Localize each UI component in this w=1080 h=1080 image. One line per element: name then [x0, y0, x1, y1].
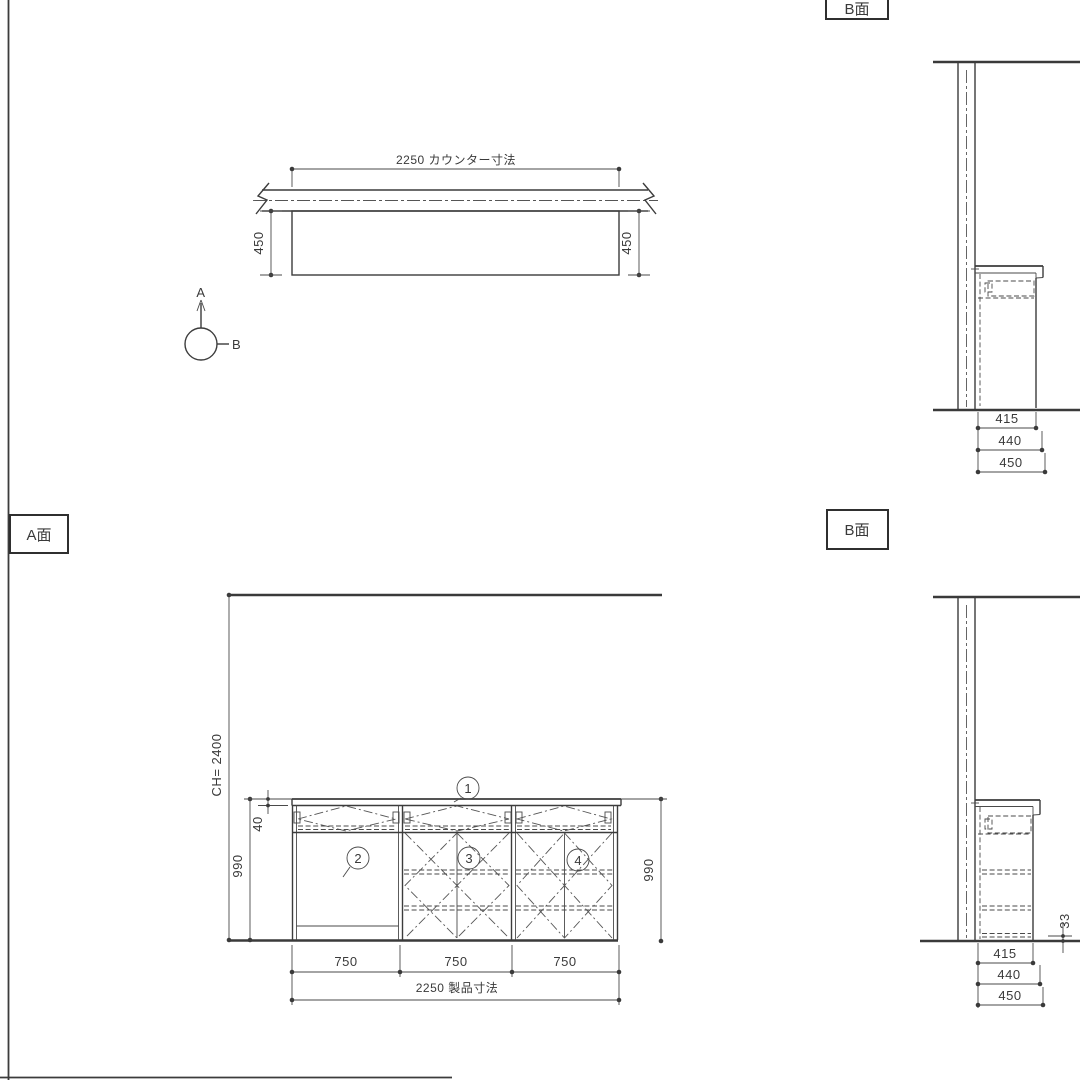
callout-1: 1: [464, 781, 471, 796]
b-bottom-title: B面: [844, 522, 869, 539]
plan-wall: [253, 183, 658, 214]
wall-break-left: [256, 183, 269, 214]
plan-counter-outline: [292, 211, 619, 275]
callout-3: 3: [465, 851, 472, 866]
a-drawer-row: [294, 806, 611, 831]
a-ch-label: CH= 2400: [209, 734, 224, 797]
a-door-bay-2: [404, 833, 510, 938]
a-counter-slab: [292, 799, 621, 806]
a-bottom-dims: 750 750 750 2250 製品寸法: [290, 945, 622, 1005]
plan-dim-450-left: 450: [251, 209, 282, 278]
b-bottom-dim-33: 33: [1048, 913, 1072, 953]
b-top-title: B面: [844, 1, 869, 18]
section-b-top: 415 440 450: [933, 62, 1080, 474]
b-bottom-dim-440: 440: [997, 967, 1020, 982]
a-40-label: 40: [250, 816, 265, 831]
b-bottom-dim-415: 415: [993, 946, 1016, 961]
plan-depth-left-label: 450: [251, 231, 266, 254]
a-dim-total: 2250 製品寸法: [416, 981, 499, 995]
a-dim-750-2: 750: [444, 954, 467, 969]
b-bottom-dims: 415 440 450: [976, 943, 1046, 1008]
b-top-dims: 415 440 450: [976, 411, 1048, 474]
a-dim-750-3: 750: [553, 954, 576, 969]
a-990-right-label: 990: [641, 858, 656, 881]
a-door-bay-3: [516, 833, 613, 938]
b-bottom-dim-450: 450: [998, 988, 1021, 1003]
b-top-counter: [971, 266, 1043, 408]
a-dim-990-right: 990: [621, 797, 667, 944]
b-top-drawer-hidden: [988, 281, 1034, 296]
callout-2: 2: [354, 851, 361, 866]
a-dim-750-1: 750: [334, 954, 357, 969]
b-top-dim-415: 415: [995, 411, 1018, 426]
direction-marker: A B: [185, 285, 241, 360]
marker-a-label: A: [196, 285, 205, 300]
b-bottom-toe-label: 33: [1057, 913, 1072, 928]
plan-dim-2250: 2250 カウンター寸法: [290, 153, 622, 187]
view-title-b-bottom: B面: [827, 510, 888, 549]
cad-drawing-sheet: 2250 カウンター寸法 450 450: [0, 0, 1080, 1080]
callout-4: 4: [574, 853, 581, 868]
b-top-dim-440: 440: [998, 433, 1021, 448]
a-callouts: 1 2 3 4: [343, 777, 589, 877]
view-title-a: A面: [10, 515, 68, 553]
a-dim-ch2400: CH= 2400: [209, 593, 231, 943]
elevation-a: CH= 2400 990 40 990: [209, 593, 667, 1005]
a-title: A面: [26, 527, 51, 544]
b-bottom-drawer-hidden: [988, 816, 1031, 833]
plan-counter-dim-label: 2250 カウンター寸法: [396, 153, 516, 167]
a-990-left-label: 990: [230, 854, 245, 877]
plan-view: 2250 カウンター寸法 450 450: [251, 153, 658, 277]
drawing-canvas: 2250 カウンター寸法 450 450: [0, 0, 1080, 1080]
section-b-bottom: 33 415 440 450: [920, 597, 1080, 1008]
view-title-b-top: B面: [826, 0, 888, 19]
b-bottom-cabinet: [971, 800, 1040, 941]
plan-depth-right-label: 450: [619, 231, 634, 254]
wall-break-right: [643, 183, 656, 214]
marker-b-label: B: [232, 337, 241, 352]
b-top-dim-450: 450: [999, 455, 1022, 470]
plan-dim-450-right: 450: [619, 209, 650, 278]
a-dim-40: 40: [250, 790, 288, 832]
